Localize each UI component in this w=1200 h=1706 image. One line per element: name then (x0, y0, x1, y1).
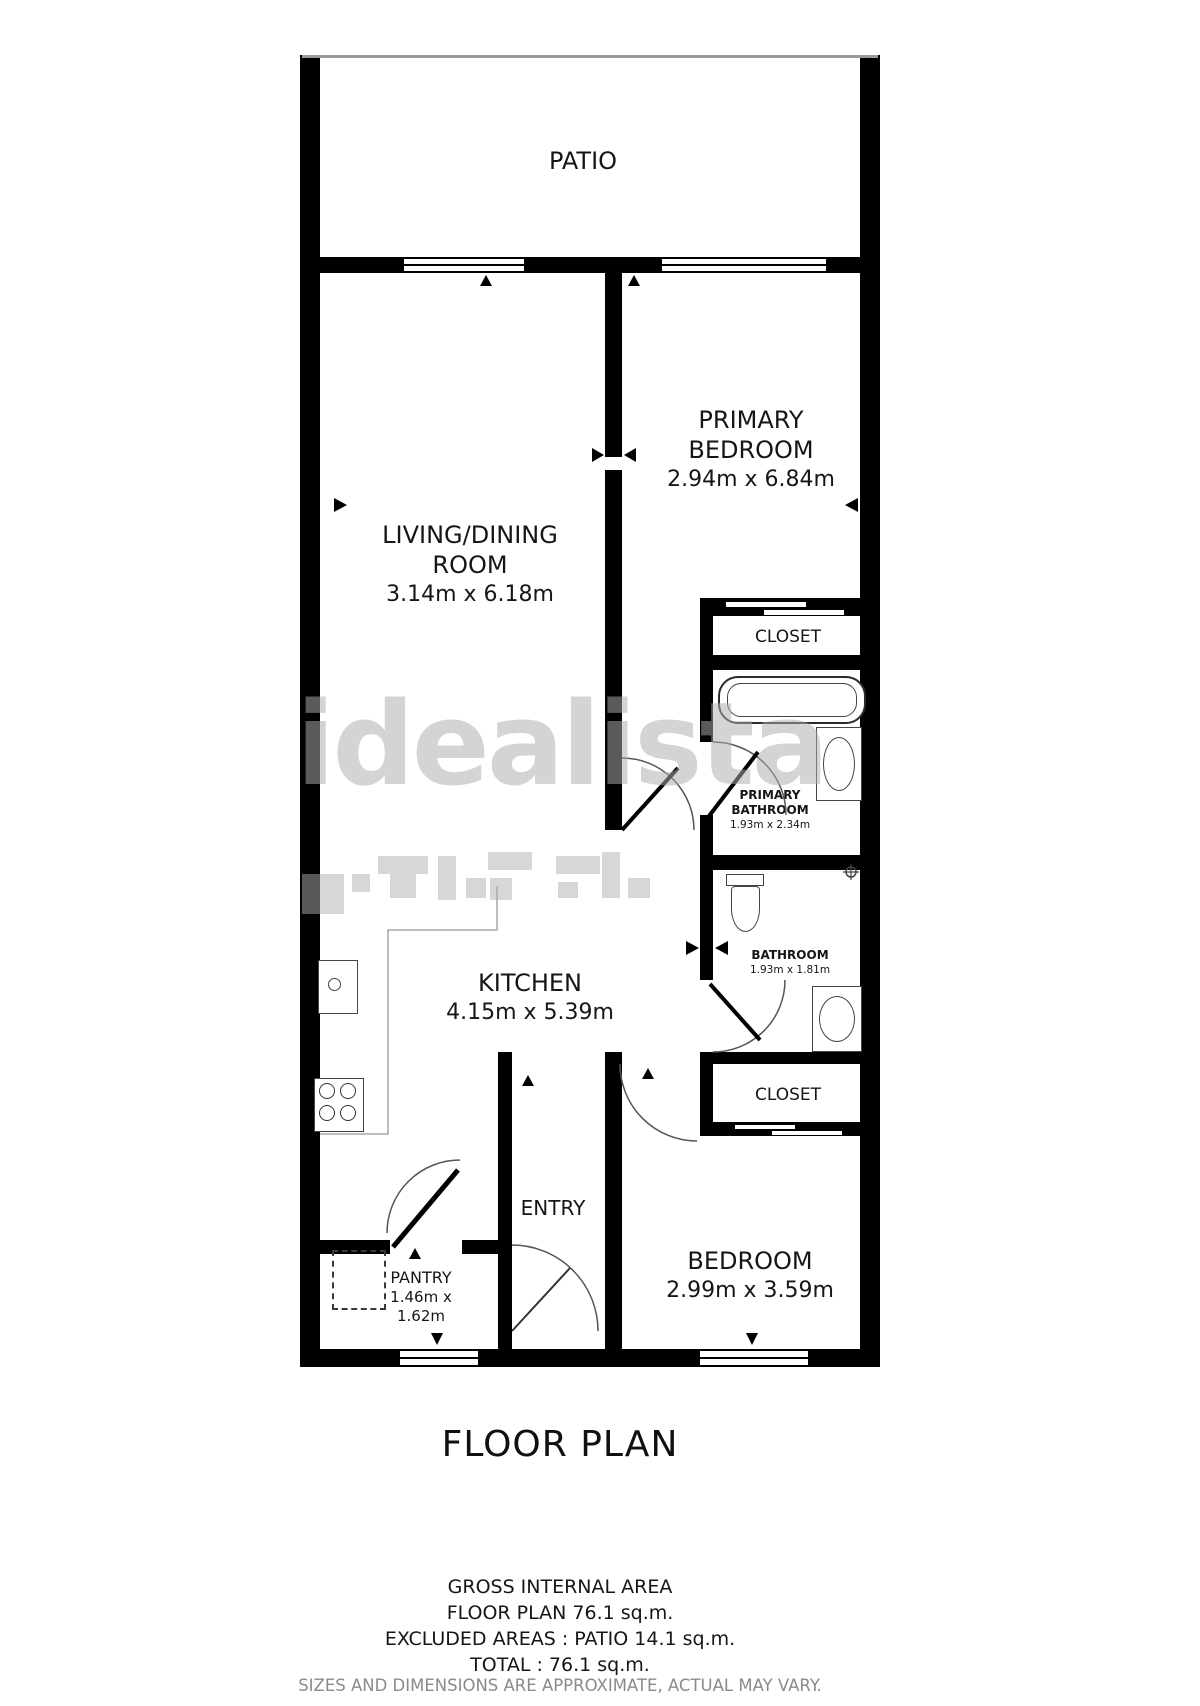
threshold-arrow (746, 1333, 758, 1345)
door-arc-pantry (387, 1160, 460, 1233)
watermark-pixel (490, 878, 512, 900)
watermark-pixel (466, 878, 486, 898)
dimension-arrow (845, 498, 858, 512)
watermark-pixel (352, 874, 370, 892)
dimension-arrow (686, 941, 699, 955)
threshold-arrow (522, 1075, 534, 1086)
watermark-pixel (438, 856, 456, 900)
threshold-arrow (642, 1068, 654, 1079)
door-leaf-entry (512, 1268, 570, 1331)
floor-plan-canvas: PATIO PRIMARY BEDROOM 2.94m x 6.84m LIVI… (0, 0, 1200, 1706)
watermark-pixel (390, 874, 416, 898)
idealista-watermark: idealista (296, 688, 826, 803)
plan-annotations-svg (0, 0, 1200, 1706)
threshold-arrow (431, 1333, 443, 1345)
door-leaf-bathroom (710, 984, 760, 1040)
kitchen-counter-line (320, 886, 497, 1134)
dimension-arrow (592, 448, 604, 462)
watermark-pixel (488, 852, 532, 870)
watermark-pixel (556, 856, 600, 874)
watermark-pixel (628, 878, 650, 898)
watermark-pixel (558, 882, 578, 898)
shower-faucet-icon (843, 864, 859, 880)
threshold-arrow (628, 275, 640, 286)
watermark-pixel (602, 852, 620, 898)
watermark-pixel (302, 874, 344, 914)
watermark-pixel (378, 856, 428, 874)
threshold-arrow (480, 275, 492, 286)
dimension-arrow (624, 448, 636, 462)
door-leaf-pantry (393, 1170, 458, 1247)
door-arc-bathroom (713, 980, 785, 1052)
dimension-arrow (715, 941, 728, 955)
dimension-arrow (334, 498, 347, 512)
threshold-arrow (409, 1248, 421, 1259)
door-arc-bedroom (620, 1064, 697, 1141)
